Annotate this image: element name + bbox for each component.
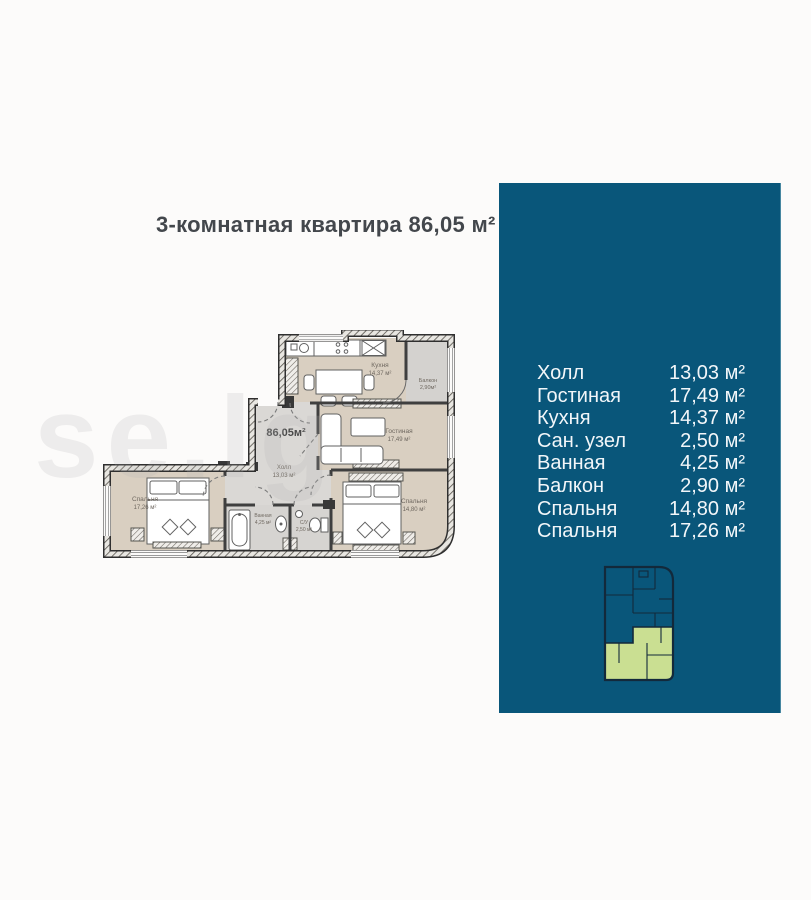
total-area-label: 86,05м²	[266, 427, 306, 439]
room-label: Балкон	[537, 475, 604, 498]
bedroom-left-area: 17,26 м²	[134, 505, 157, 511]
bedroom-right-label: Спальня	[401, 498, 428, 505]
room-label: Спальня	[537, 520, 617, 543]
balcony-label: Балкон	[419, 378, 437, 384]
floor-plan: Кухня 14,37 м² Балкон 2,90м² Гостиная 17…	[55, 330, 475, 570]
room-row-balcony: Балкон 2,90 м²	[537, 475, 745, 498]
kitchen-area: 14,37 м²	[369, 371, 392, 377]
info-panel: Холл 13,03 м² Гостиная 17,49 м² Кухня 14…	[499, 183, 781, 713]
kitchen-label: Кухня	[371, 362, 389, 369]
listing-image: 3-комнатная квартира 86,05 м²	[0, 0, 811, 900]
wc-label: С/У	[300, 520, 309, 526]
room-area: 17,26 м²	[669, 520, 745, 543]
room-row-hall: Холл 13,03 м²	[537, 362, 745, 385]
room-label: Ванная	[537, 452, 606, 475]
living-area: 17,49 м²	[388, 437, 411, 443]
floor-locator-map	[599, 563, 679, 685]
bedroom-left-label: Спальня	[132, 496, 159, 503]
living-label: Гостиная	[385, 428, 413, 435]
room-area: 4,25 м²	[680, 452, 745, 475]
balcony-area: 2,90м²	[420, 385, 436, 391]
room-row-bath: Ванная 4,25 м²	[537, 452, 745, 475]
room-area: 2,50 м²	[680, 430, 745, 453]
room-label: Сан. узел	[537, 430, 626, 453]
room-area: 14,80 м²	[669, 498, 745, 521]
page-title: 3-комнатная квартира 86,05 м²	[156, 212, 496, 238]
hall-area: 13,03 м²	[273, 473, 296, 479]
bath-area: 4,25 м²	[255, 520, 272, 526]
room-label: Кухня	[537, 407, 591, 430]
room-row-bedroom1: Спальня 14,80 м²	[537, 498, 745, 521]
room-row-living: Гостиная 17,49 м²	[537, 385, 745, 408]
room-area: 14,37 м²	[669, 407, 745, 430]
bedroom-right-area: 14,80 м²	[403, 507, 426, 513]
bath-label: Ванная	[254, 513, 271, 519]
room-area: 17,49 м²	[669, 385, 745, 408]
room-label: Гостиная	[537, 385, 621, 408]
room-area: 2,90 м²	[680, 475, 745, 498]
room-area: 13,03 м²	[669, 362, 745, 385]
room-label: Спальня	[537, 498, 617, 521]
hall-label: Холл	[277, 465, 292, 471]
room-row-bedroom2: Спальня 17,26 м²	[537, 520, 745, 543]
apartment-highlight	[605, 627, 673, 680]
room-label: Холл	[537, 362, 584, 385]
wc-area: 2,50 м²	[296, 527, 313, 533]
room-list: Холл 13,03 м² Гостиная 17,49 м² Кухня 14…	[537, 362, 745, 543]
room-row-kitchen: Кухня 14,37 м²	[537, 407, 745, 430]
room-row-sanuzel: Сан. узел 2,50 м²	[537, 430, 745, 453]
